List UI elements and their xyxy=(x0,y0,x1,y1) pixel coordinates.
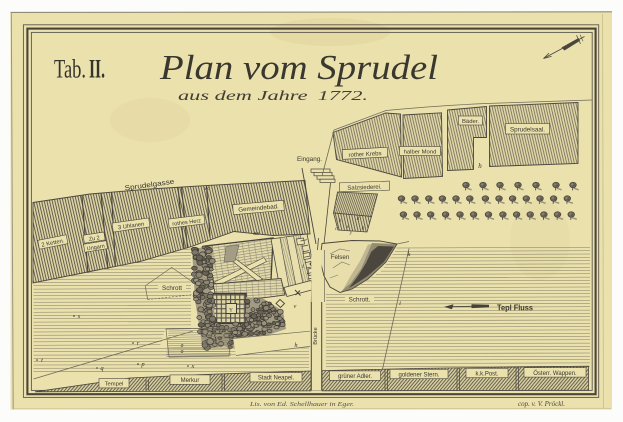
svg-text:goldener Stern.: goldener Stern. xyxy=(398,372,439,378)
svg-text:o: o xyxy=(181,349,184,355)
svg-text:aa: aa xyxy=(253,231,259,237)
svg-text:II.: II. xyxy=(89,55,105,84)
svg-text:Schrott: Schrott xyxy=(162,285,182,292)
svg-text:Tab.: Tab. xyxy=(54,55,86,84)
svg-text:i: i xyxy=(302,263,304,270)
svg-text:h: h xyxy=(478,162,482,170)
svg-text:Plan vom Sprudel: Plan vom Sprudel xyxy=(159,48,438,87)
svg-text:cop. v. V. Pröckl.: cop. v. V. Pröckl. xyxy=(518,400,565,408)
svg-text:v: v xyxy=(294,304,297,310)
svg-text:Merkur: Merkur xyxy=(181,378,200,384)
svg-text:Tempel: Tempel xyxy=(105,382,124,388)
svg-text:Österr. Wappen.: Österr. Wappen. xyxy=(533,370,577,377)
svg-text:aus dem Jahre 1772.: aus dem Jahre 1772. xyxy=(178,88,368,103)
svg-text:Y: Y xyxy=(229,308,233,314)
svg-text:halber Mond: halber Mond xyxy=(404,150,437,156)
svg-text:Stadt Neapel.: Stadt Neapel. xyxy=(258,376,295,382)
svg-text:Tepl Fluss: Tepl Fluss xyxy=(497,304,534,313)
svg-text:Felsen: Felsen xyxy=(331,254,350,261)
svg-text:Bäder.: Bäder. xyxy=(462,119,479,125)
svg-text:Brücke: Brücke xyxy=(313,327,319,344)
svg-text:h: h xyxy=(294,342,297,349)
svg-text:Sprudelsaal.: Sprudelsaal. xyxy=(510,127,545,134)
svg-text:Schrott.: Schrott. xyxy=(349,297,371,304)
svg-text:t: t xyxy=(41,357,43,364)
svg-text:Lis. von Ed. Schellhauer in Eg: Lis. von Ed. Schellhauer in Eger. xyxy=(249,401,355,408)
svg-text:i: i xyxy=(399,300,401,307)
svg-text:w.: w. xyxy=(204,186,209,192)
svg-text:grüner Adler.: grüner Adler. xyxy=(338,374,372,380)
svg-text:Eingang.: Eingang. xyxy=(297,157,322,163)
svg-text:k: k xyxy=(408,251,411,258)
svg-text:Salzsiederei.: Salzsiederei. xyxy=(347,185,382,192)
svg-text:x: x xyxy=(191,363,195,370)
svg-text:k.k.Post.: k.k.Post. xyxy=(475,371,498,377)
